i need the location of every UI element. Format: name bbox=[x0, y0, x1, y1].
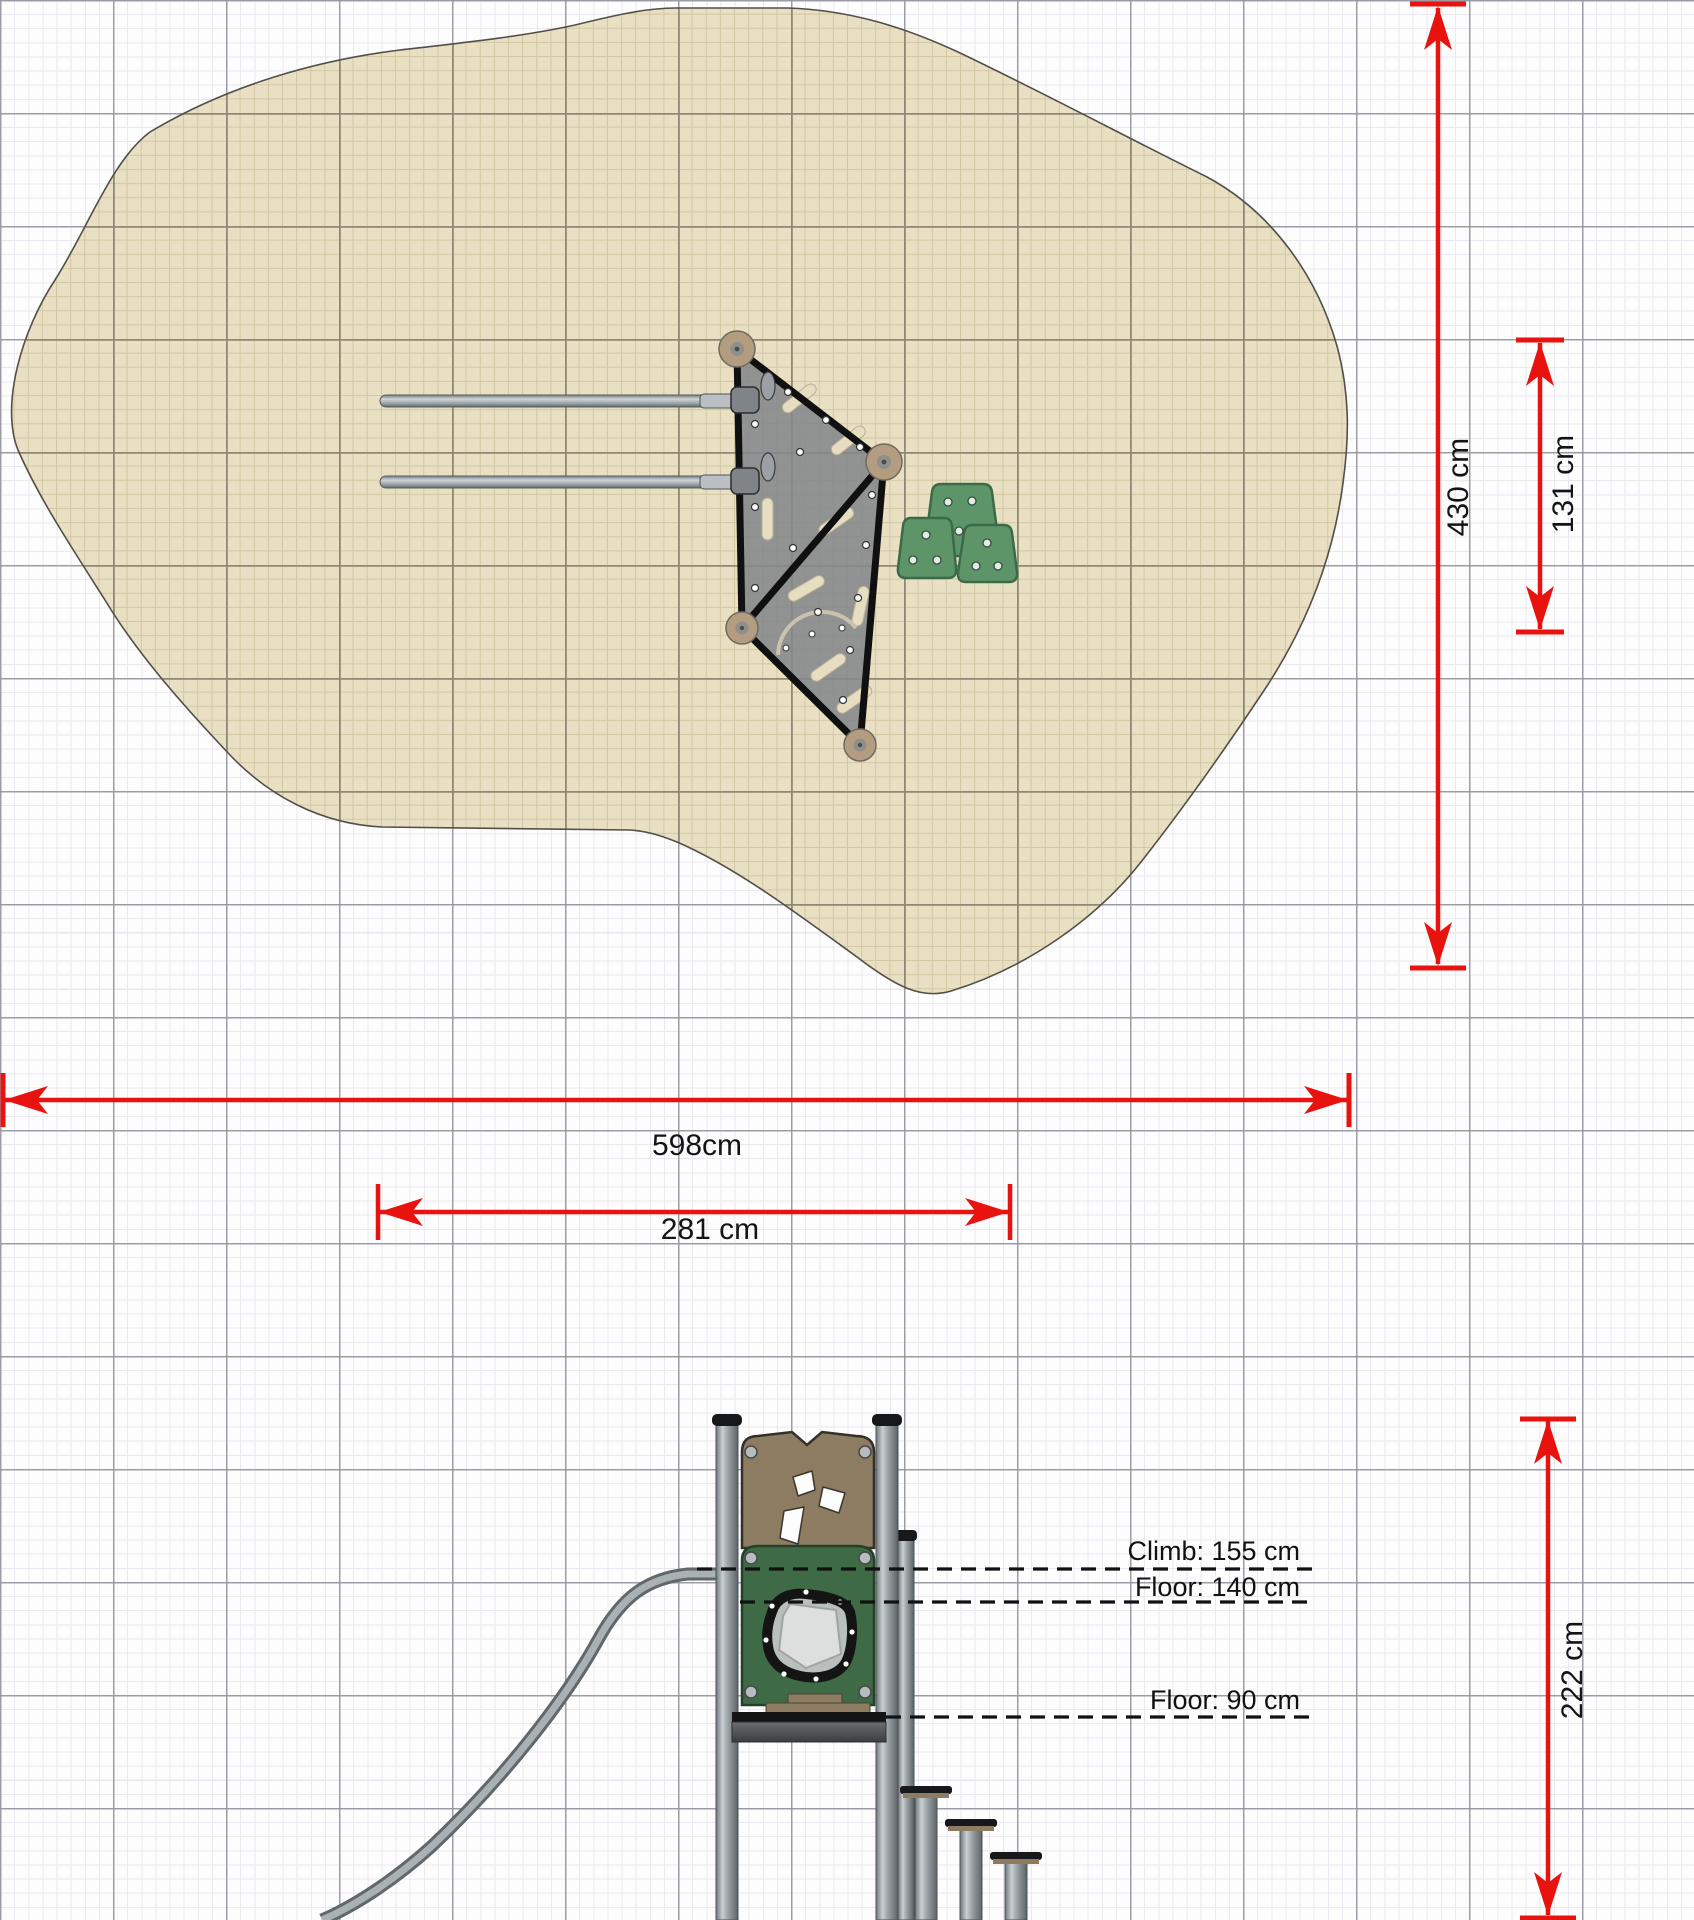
sand-surface-area bbox=[12, 8, 1348, 994]
floor-upper-label: Floor: 140 cm bbox=[1135, 1572, 1300, 1602]
dim-total-depth-label: 430 cm bbox=[1442, 438, 1475, 536]
stepping-pods bbox=[900, 1786, 1042, 1920]
drawing-layer: 430 cm 131 cm 598cm 281 cm bbox=[0, 0, 1694, 1920]
dim-elevation-height-label: 222 cm bbox=[1556, 1621, 1589, 1719]
climb-height-label: Climb: 155 cm bbox=[1127, 1536, 1300, 1566]
dim-inner-width-label: 281 cm bbox=[661, 1213, 759, 1246]
dim-total-width-label: 598cm bbox=[652, 1129, 742, 1162]
floor-lower-label: Floor: 90 cm bbox=[1150, 1685, 1300, 1715]
elevation-view: Climb: 155 cm Floor: 140 cm Floor: 90 cm… bbox=[322, 1414, 1589, 1920]
dim-inner-depth-label: 131 cm bbox=[1547, 435, 1580, 533]
playground-plan-drawing: 430 cm 131 cm 598cm 281 cm bbox=[0, 0, 1694, 1920]
dimension-total-width bbox=[3, 1073, 1349, 1127]
